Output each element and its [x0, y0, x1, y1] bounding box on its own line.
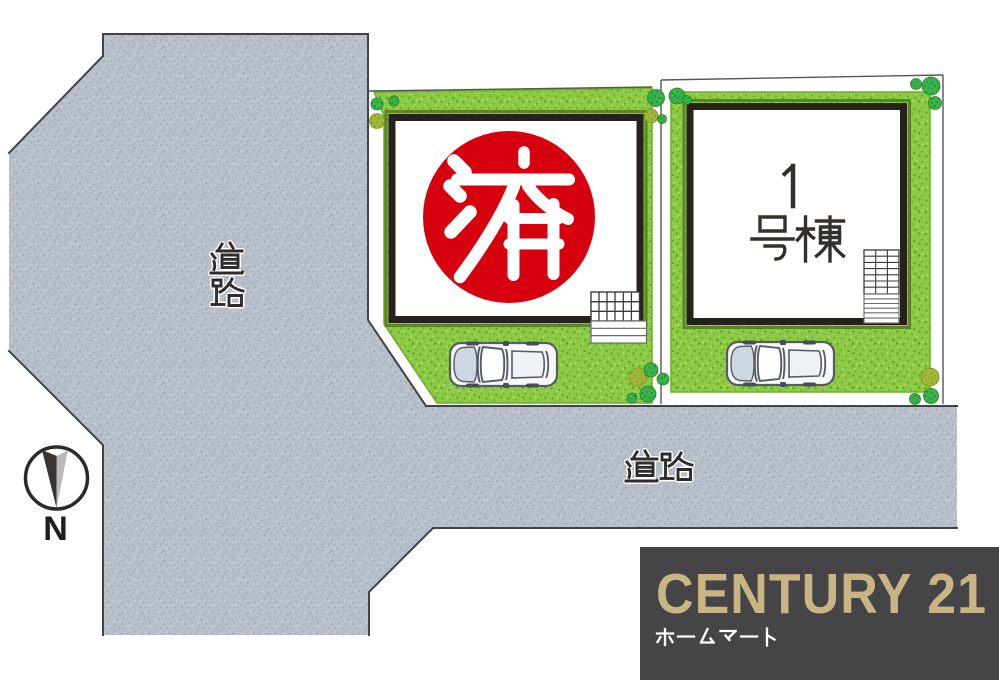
- svg-text:CENTURY 21: CENTURY 21: [656, 562, 986, 626]
- svg-text:N: N: [43, 510, 68, 548]
